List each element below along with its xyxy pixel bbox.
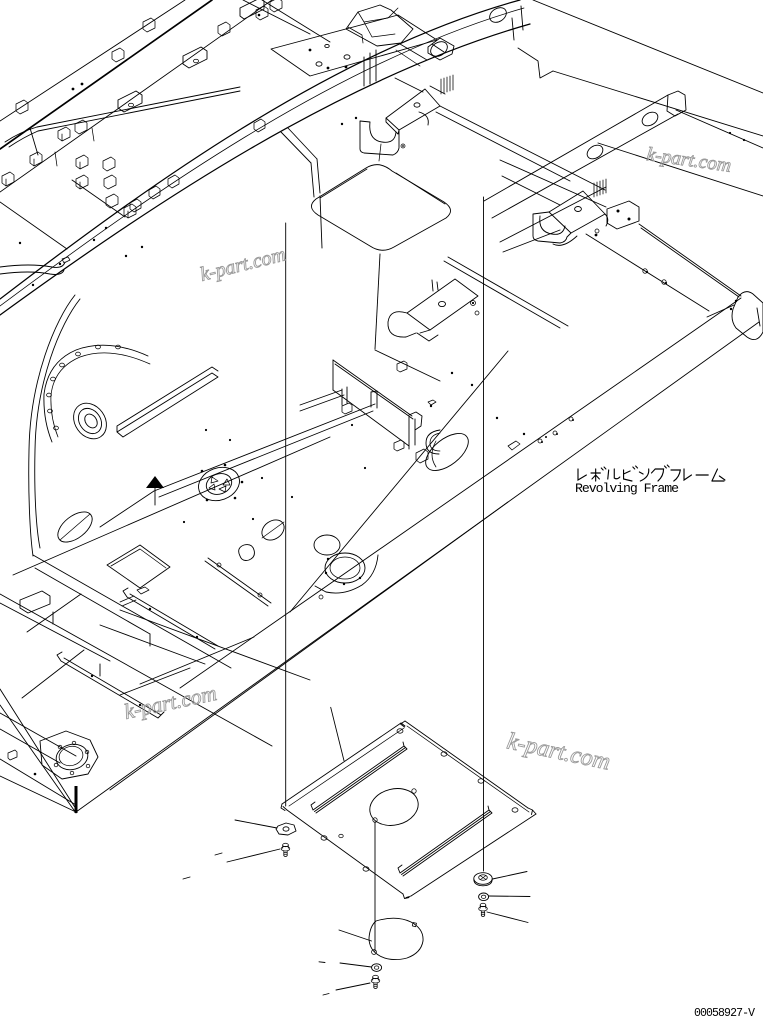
svg-text:Revolving Frame: Revolving Frame: [575, 481, 679, 496]
svg-text:00058927-V: 00058927-V: [694, 1007, 755, 1020]
